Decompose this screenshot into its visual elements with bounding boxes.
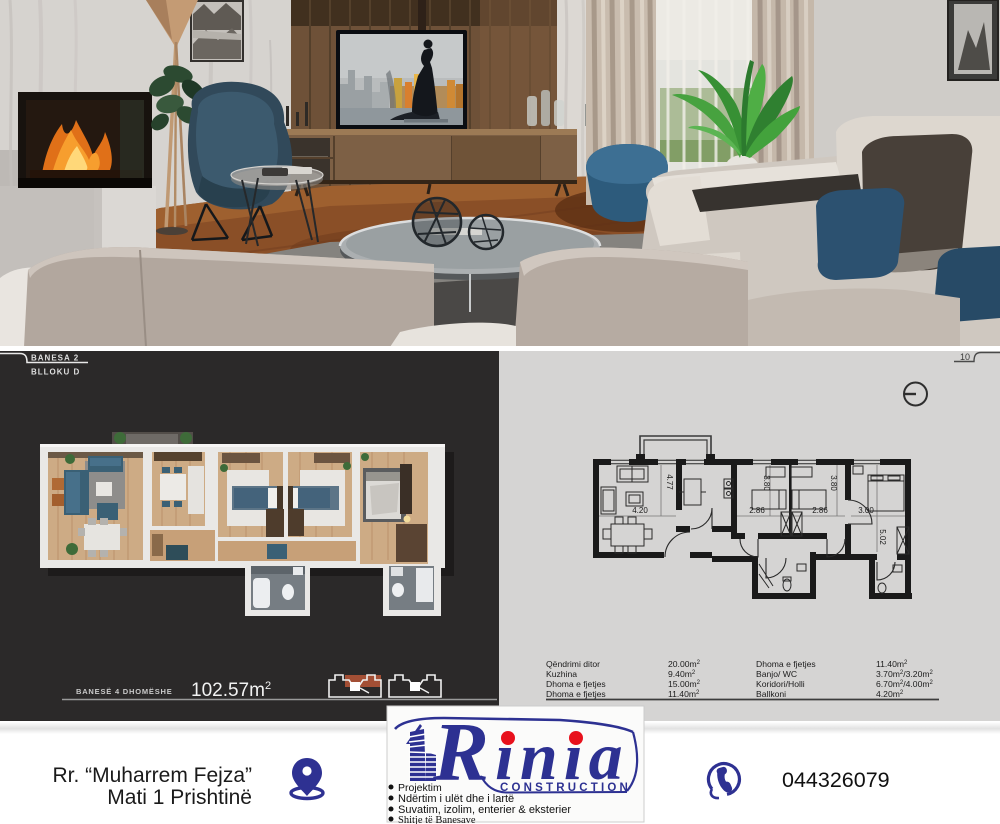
svg-text:BLLOKU D: BLLOKU D xyxy=(31,368,80,377)
svg-text:Dhoma e fjetjes: Dhoma e fjetjes xyxy=(756,659,816,669)
svg-text:11.40m2: 11.40m2 xyxy=(876,659,908,669)
svg-text:3.80: 3.80 xyxy=(829,475,838,491)
svg-text:Koridori/Holli: Koridori/Holli xyxy=(756,679,805,689)
svg-text:4.20m2: 4.20m2 xyxy=(876,689,904,699)
svg-text:Shitje të Banesave: Shitje të Banesave xyxy=(398,815,476,824)
svg-text:4.77: 4.77 xyxy=(665,474,674,490)
svg-text:11.40m2: 11.40m2 xyxy=(668,689,700,699)
svg-text:Qëndrimi ditor: Qëndrimi ditor xyxy=(546,659,600,669)
svg-text:9.40m2: 9.40m2 xyxy=(668,669,696,679)
svg-text:044326079: 044326079 xyxy=(782,768,890,792)
svg-text:4.20: 4.20 xyxy=(632,506,648,515)
svg-text:Banjo/ WC: Banjo/ WC xyxy=(756,669,797,679)
svg-text:Mati 1 Prishtinë: Mati 1 Prishtinë xyxy=(107,786,252,809)
svg-text:20.00m2: 20.00m2 xyxy=(668,659,701,669)
svg-text:Kuzhina: Kuzhina xyxy=(546,669,577,679)
svg-text:10: 10 xyxy=(960,352,970,362)
svg-text:BANESA 2: BANESA 2 xyxy=(31,354,79,363)
svg-text:3.70m2/3.20m2: 3.70m2/3.20m2 xyxy=(876,669,934,679)
svg-text:5.02: 5.02 xyxy=(878,529,887,545)
svg-text:Ballkoni: Ballkoni xyxy=(756,689,786,699)
svg-text:BANESË 4 DHOMËSHE: BANESË 4 DHOMËSHE xyxy=(76,687,173,696)
svg-text:15.00m2: 15.00m2 xyxy=(668,679,701,689)
svg-text:Rr. “Muharrem Fejza”: Rr. “Muharrem Fejza” xyxy=(52,764,252,787)
svg-text:6.70m2/4.00m2: 6.70m2/4.00m2 xyxy=(876,679,934,689)
svg-text:3.80: 3.80 xyxy=(762,475,771,491)
svg-text:Dhoma e fjetjes: Dhoma e fjetjes xyxy=(546,689,606,699)
svg-text:102.57m2: 102.57m2 xyxy=(191,680,271,701)
svg-text:Dhoma e fjetjes: Dhoma e fjetjes xyxy=(546,679,606,689)
